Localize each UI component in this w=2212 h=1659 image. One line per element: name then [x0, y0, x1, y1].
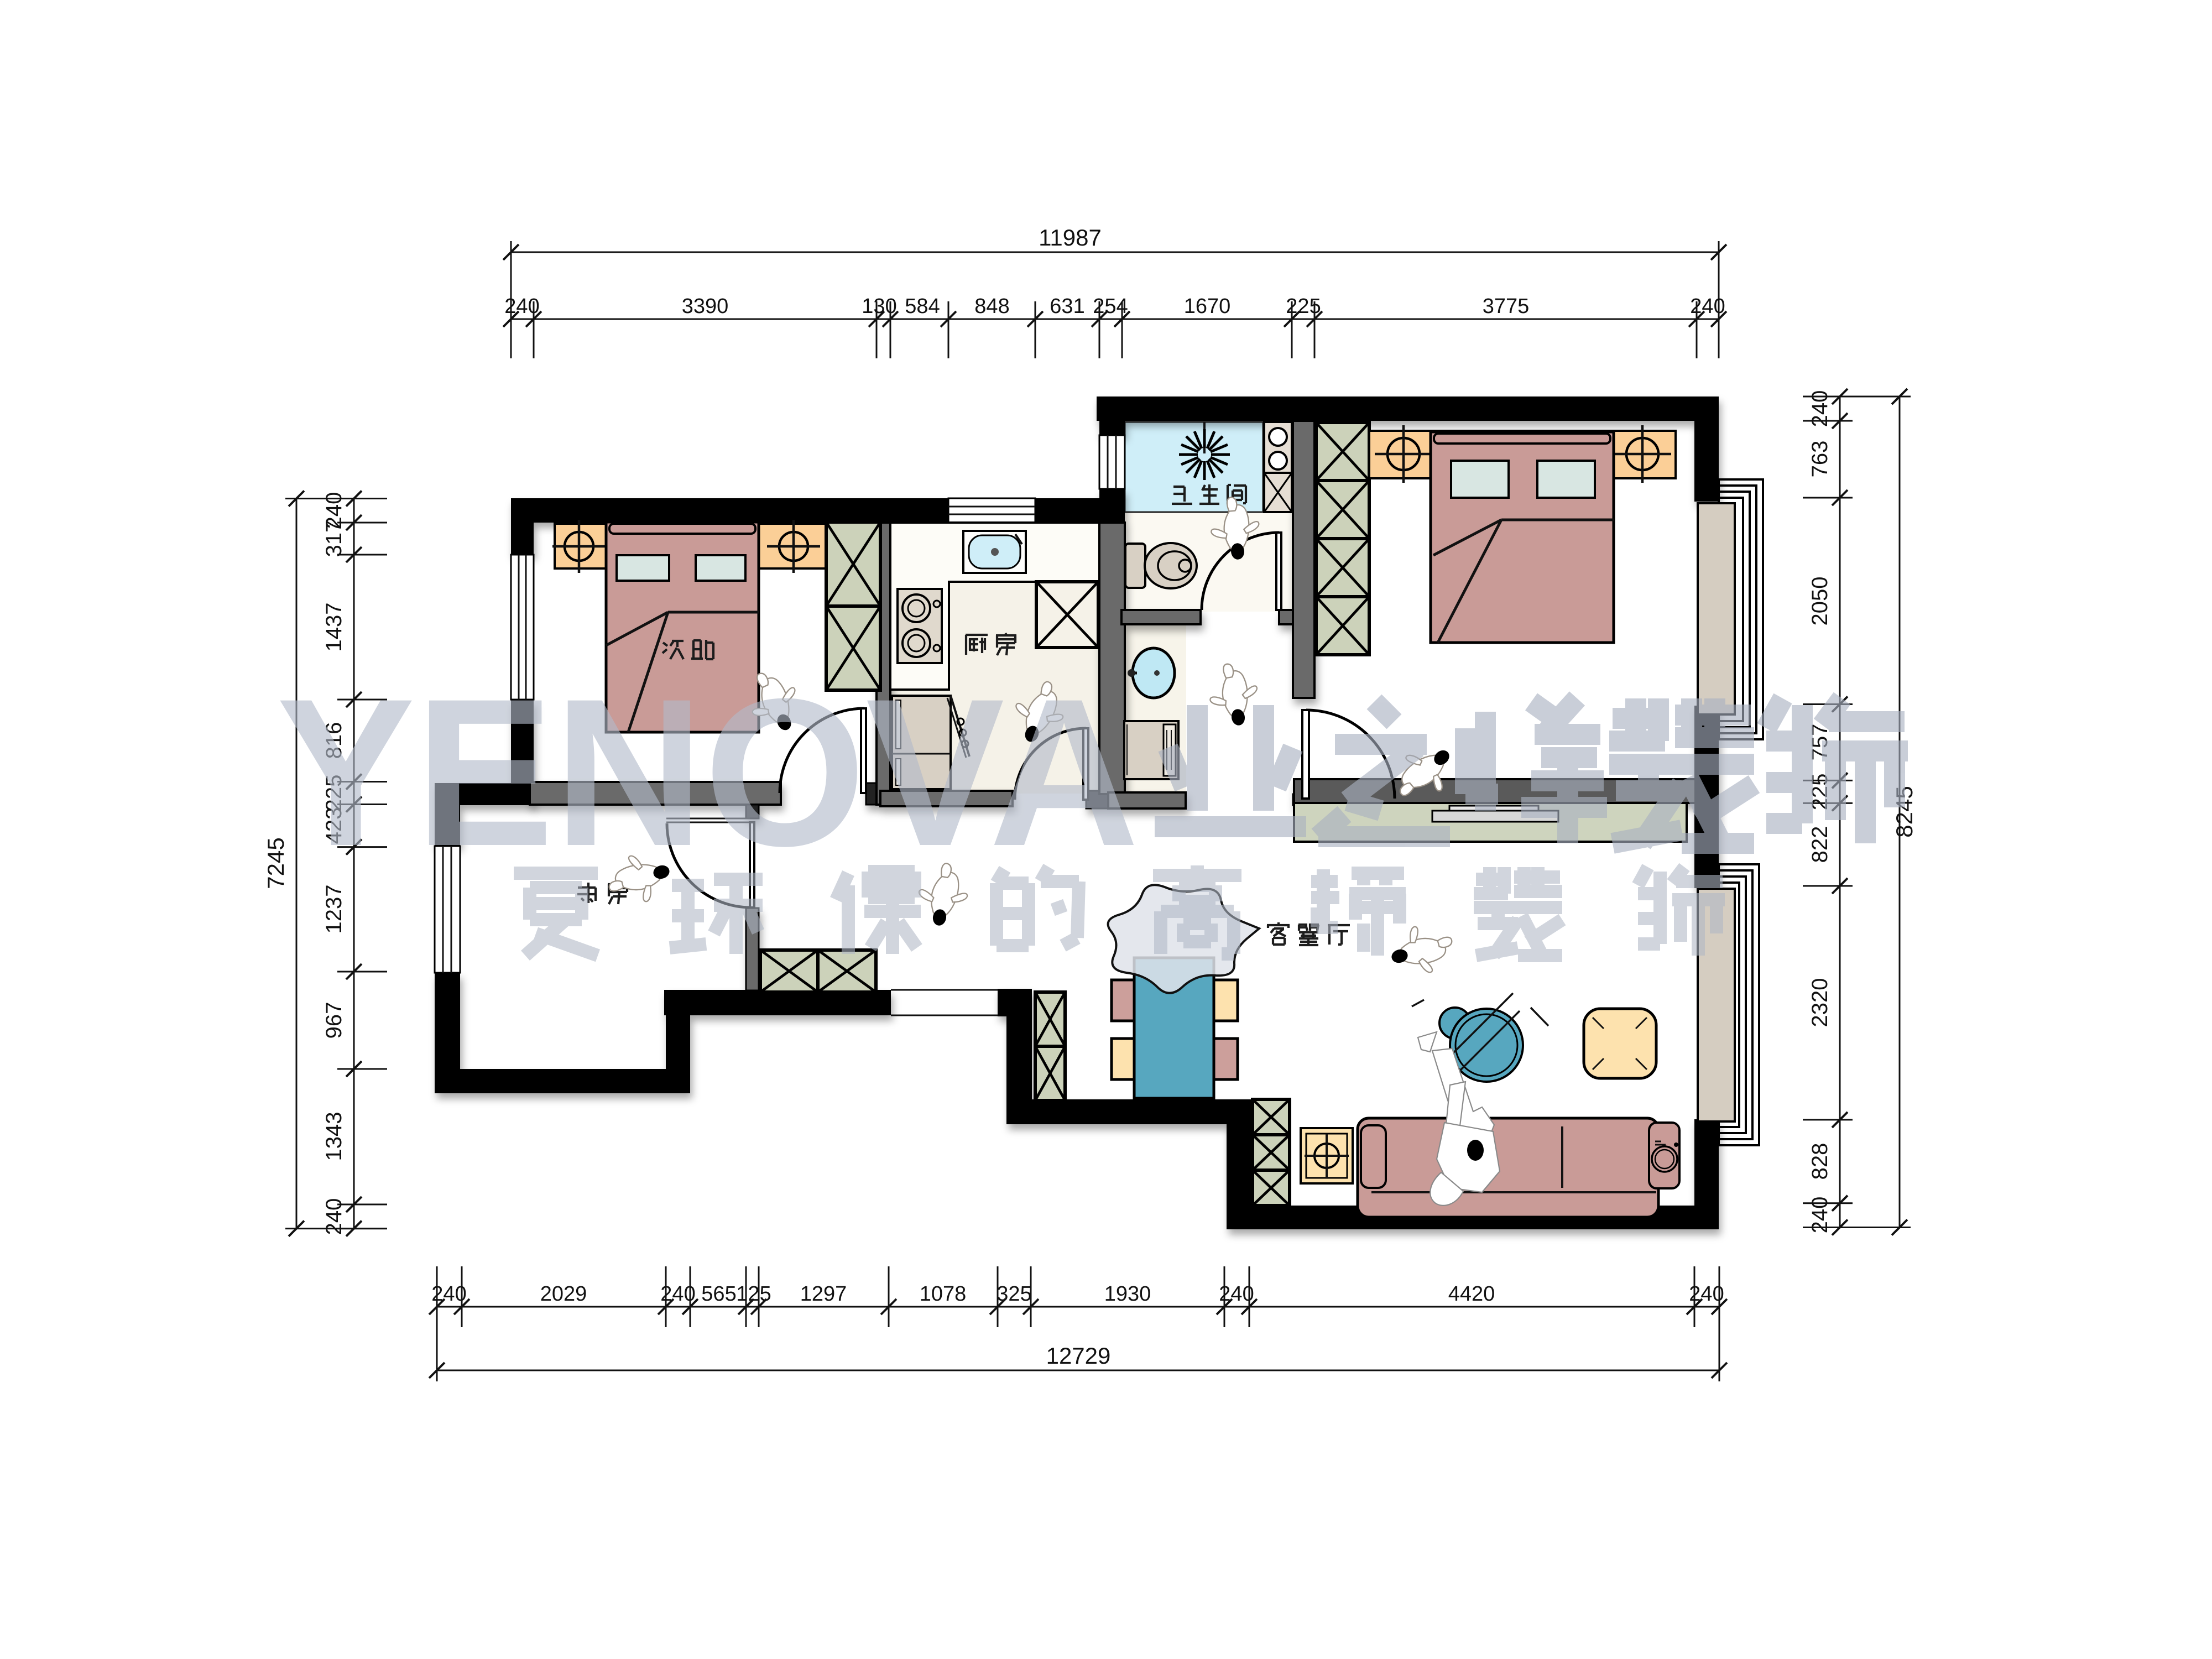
svg-text:828: 828	[1808, 1143, 1832, 1180]
svg-text:325: 325	[997, 1282, 1031, 1306]
svg-text:631: 631	[1050, 295, 1084, 318]
svg-text:2029: 2029	[540, 1282, 587, 1306]
svg-text:240: 240	[504, 295, 539, 318]
svg-text:4420: 4420	[1448, 1282, 1495, 1306]
svg-text:317: 317	[322, 520, 346, 557]
svg-text:YENOVA: YENOVA	[276, 655, 1139, 890]
svg-text:2050: 2050	[1808, 577, 1832, 626]
svg-text:763: 763	[1808, 441, 1832, 478]
svg-text:240: 240	[431, 1282, 466, 1306]
svg-text:2320: 2320	[1808, 978, 1832, 1027]
svg-text:12729: 12729	[1046, 1343, 1111, 1369]
svg-text:240: 240	[1690, 295, 1725, 318]
svg-text:240: 240	[1219, 1282, 1254, 1306]
svg-text:565: 565	[701, 1282, 736, 1306]
svg-text:11987: 11987	[1039, 225, 1102, 251]
svg-text:822: 822	[1808, 826, 1832, 863]
svg-text:240: 240	[1808, 1197, 1832, 1234]
svg-text:254: 254	[1093, 295, 1128, 318]
svg-text:584: 584	[905, 295, 940, 318]
svg-text:225: 225	[1286, 295, 1321, 318]
svg-text:1930: 1930	[1104, 1282, 1151, 1306]
svg-text:1297: 1297	[800, 1282, 847, 1306]
svg-text:125: 125	[736, 1282, 771, 1306]
svg-text:240: 240	[660, 1282, 695, 1306]
svg-text:1670: 1670	[1184, 295, 1231, 318]
svg-text:1237: 1237	[322, 885, 346, 934]
svg-text:1343: 1343	[322, 1112, 346, 1161]
svg-text:3775: 3775	[1483, 295, 1530, 318]
svg-text:848: 848	[974, 295, 1009, 318]
svg-text:3390: 3390	[682, 295, 729, 318]
svg-text:130: 130	[862, 295, 896, 318]
svg-text:240: 240	[1808, 390, 1832, 427]
svg-text:1437: 1437	[322, 603, 346, 652]
svg-text:1078: 1078	[920, 1282, 967, 1306]
svg-text:967: 967	[322, 1002, 346, 1039]
svg-text:240: 240	[1689, 1282, 1724, 1306]
svg-text:240: 240	[322, 1198, 346, 1235]
